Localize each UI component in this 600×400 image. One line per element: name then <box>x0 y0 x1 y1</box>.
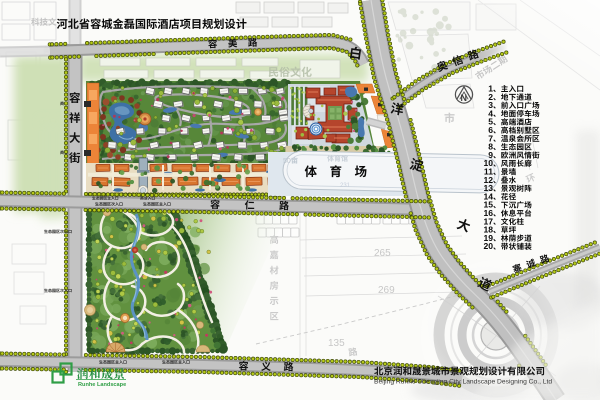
svg-text:50: 50 <box>283 158 291 165</box>
svg-text:N: N <box>461 93 468 103</box>
svg-text:269: 269 <box>378 285 395 296</box>
svg-text:20: 20 <box>483 241 493 251</box>
svg-text:Beijing Runhe Shengjing City L: Beijing Runhe Shengjing City Landscape D… <box>374 379 552 386</box>
svg-text:Runhe Landscape: Runhe Landscape <box>78 382 126 388</box>
svg-text:231: 231 <box>340 183 351 189</box>
svg-text:135: 135 <box>328 338 345 349</box>
svg-text:265: 265 <box>374 248 391 259</box>
